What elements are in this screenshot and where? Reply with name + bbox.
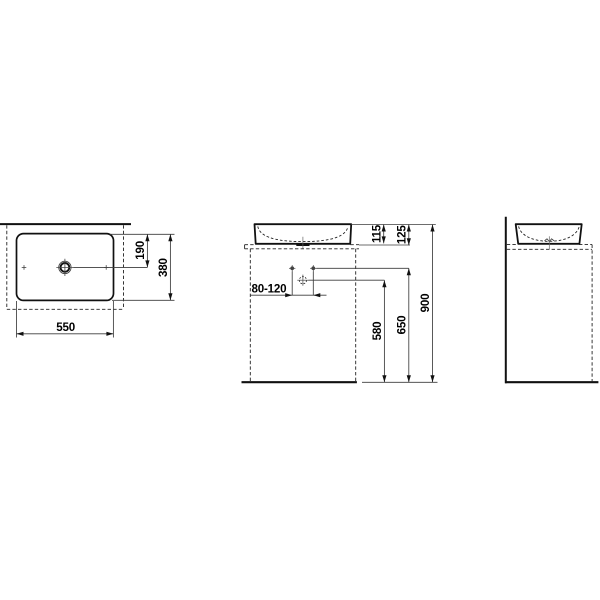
svg-text:580: 580	[371, 322, 384, 341]
svg-text:115: 115	[370, 224, 383, 243]
svg-text:125: 125	[396, 225, 409, 244]
svg-text:900: 900	[419, 294, 432, 313]
svg-text:190: 190	[134, 241, 147, 260]
svg-text:650: 650	[396, 316, 409, 335]
svg-text:80-120: 80-120	[251, 282, 286, 295]
svg-text:380: 380	[157, 258, 170, 277]
svg-text:550: 550	[56, 321, 75, 334]
